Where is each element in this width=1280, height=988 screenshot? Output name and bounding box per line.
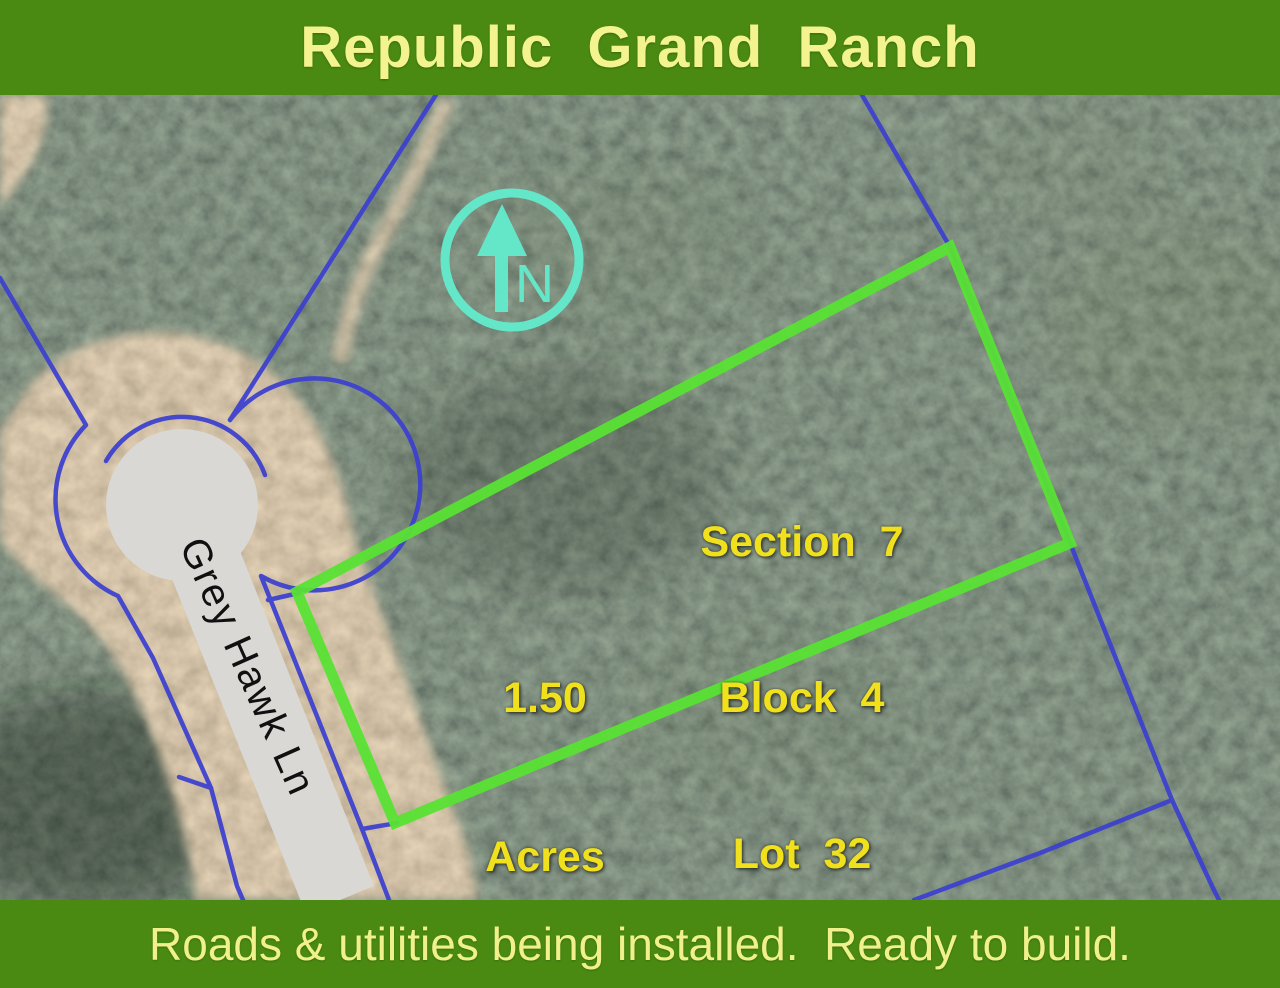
lot-id-label: Section 7 Block 4 Lot 32 — [700, 412, 903, 984]
lot-section-line: Section 7 — [700, 516, 903, 568]
ranch-title: Republic Grand Ranch — [300, 14, 979, 81]
lot-block-line: Block 4 — [700, 672, 903, 724]
bottom-banner: Roads & utilities being installed. Ready… — [0, 900, 1280, 988]
acres-unit: Acres — [485, 831, 605, 884]
acres-value: 1.50 — [485, 672, 605, 725]
compass-north-letter: N — [515, 254, 554, 314]
tagline-text: Roads & utilities being installed. Ready… — [149, 917, 1131, 971]
lot-number-line: Lot 32 — [700, 828, 903, 880]
lot-flyer: N Grey Hawk Ln Section 7 Block 4 Lot 32 … — [0, 0, 1280, 988]
aerial-map: N — [0, 0, 1280, 988]
top-banner: Republic Grand Ranch — [0, 0, 1280, 95]
